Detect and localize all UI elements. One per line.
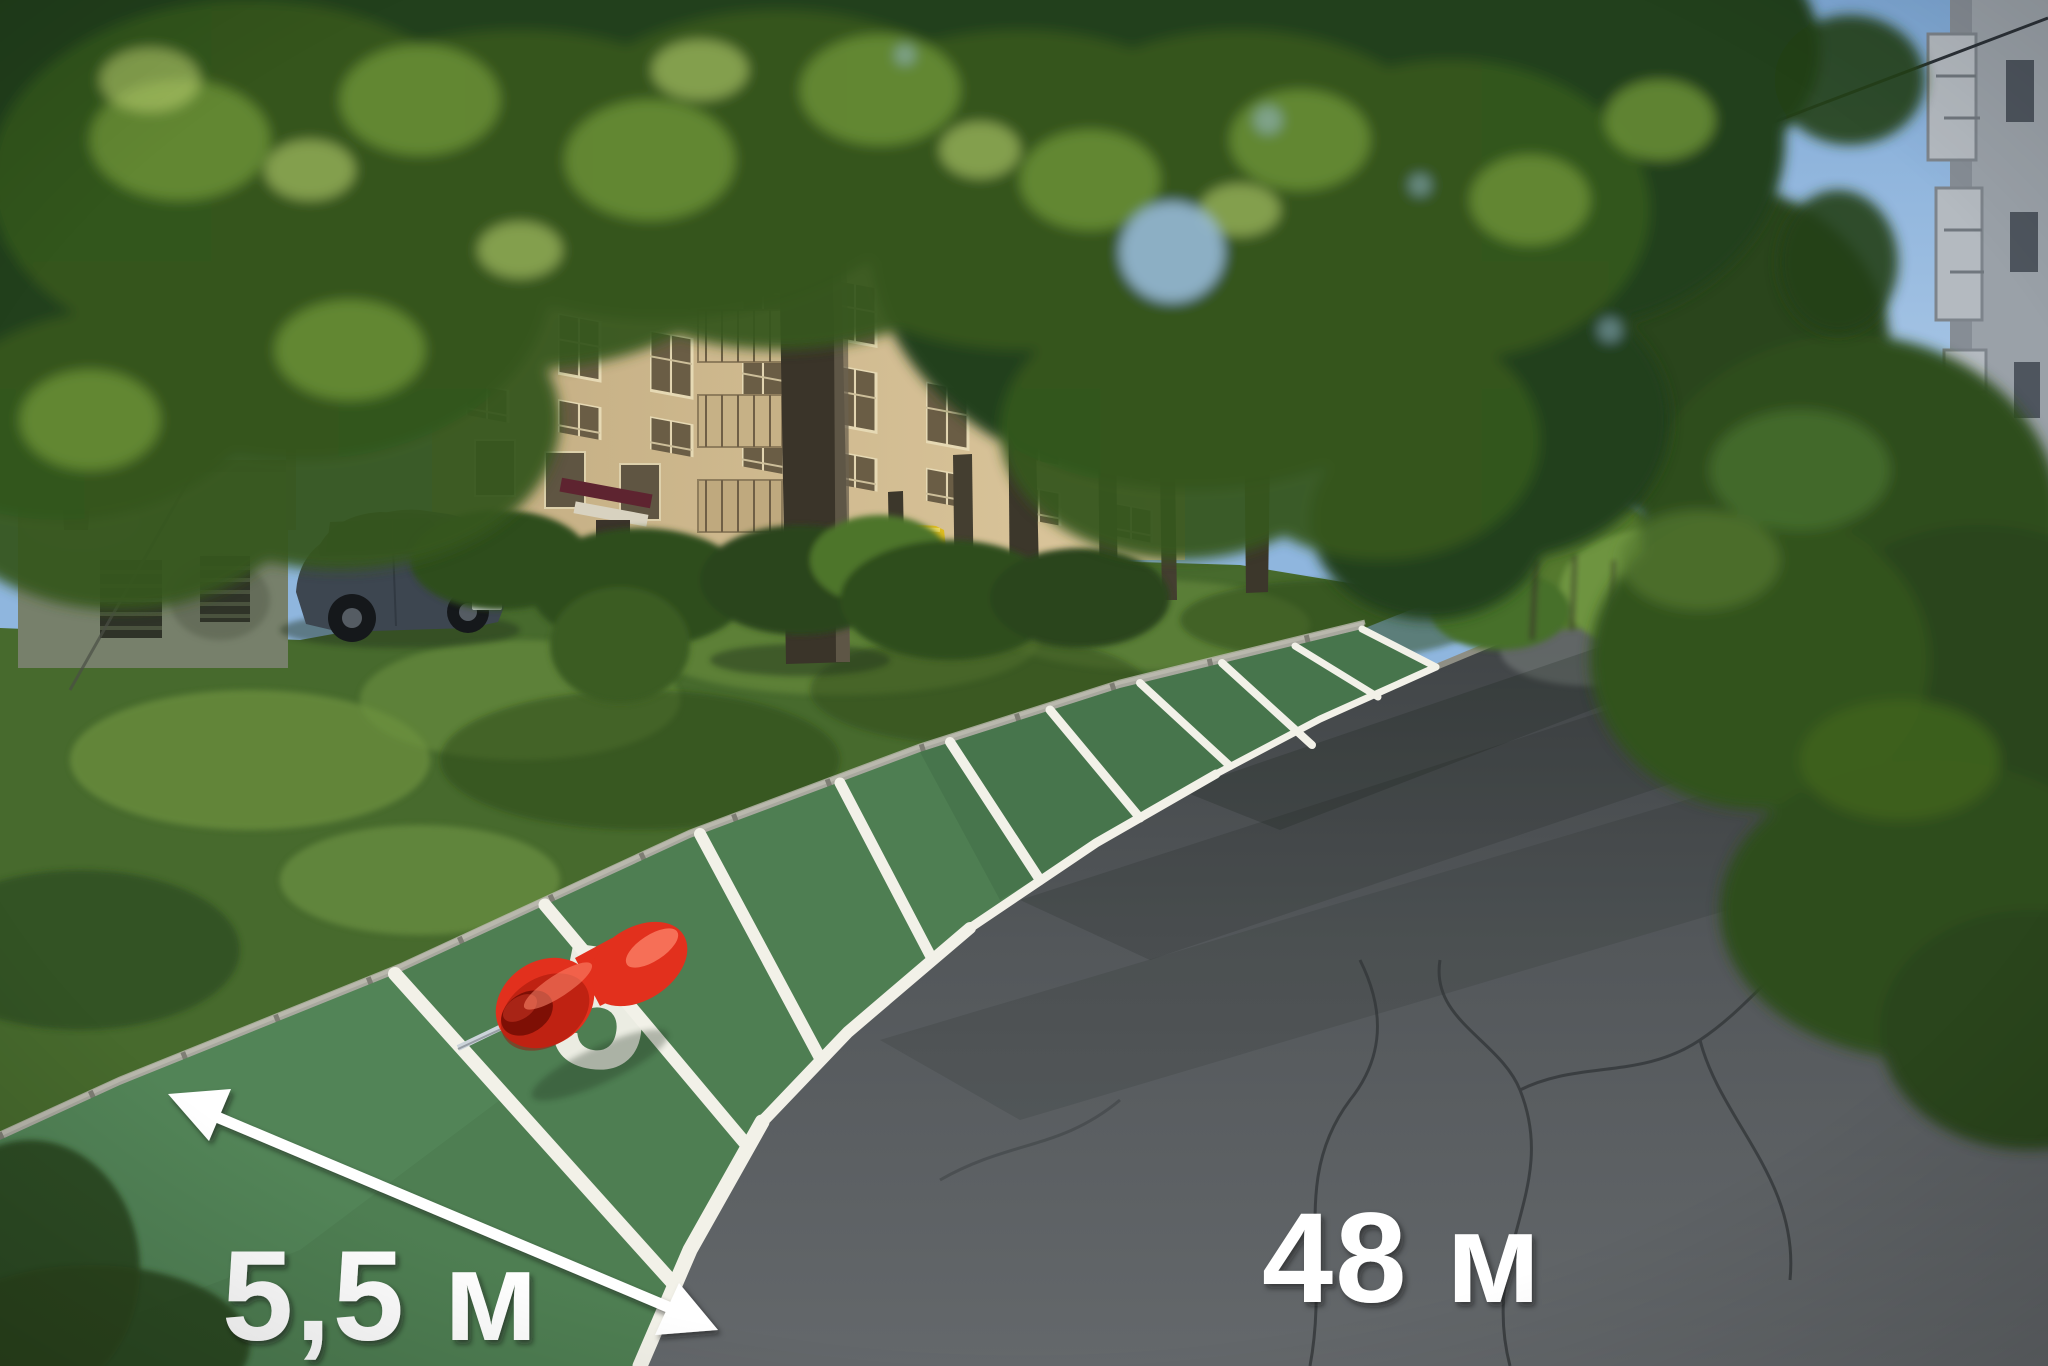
vignette xyxy=(0,0,2048,1366)
photo-canvas: 5 5,5 м 48 м xyxy=(0,0,2048,1366)
